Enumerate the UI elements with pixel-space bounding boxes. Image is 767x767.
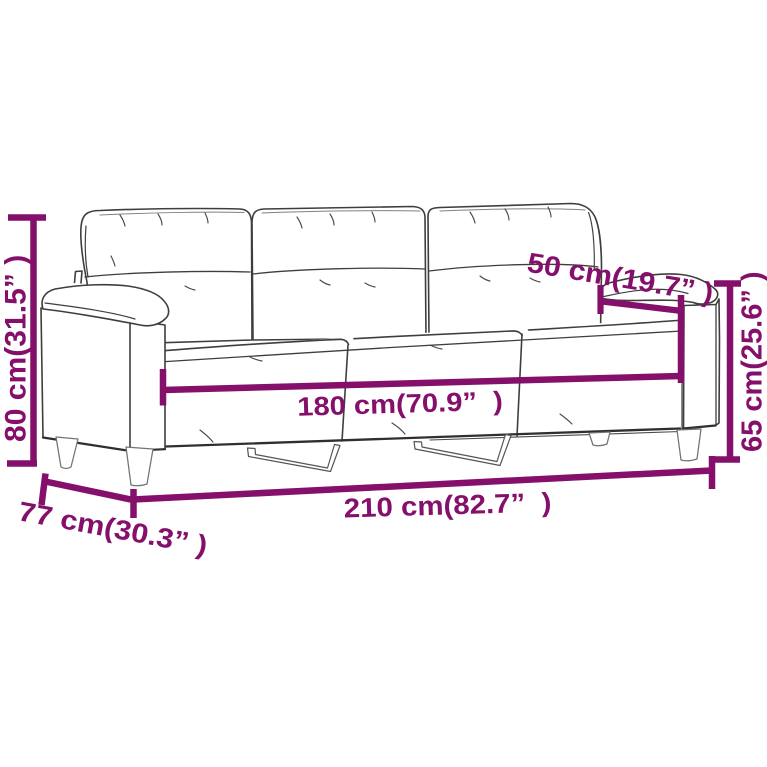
svg-text:65 cm(25.6” ): 65 cm(25.6” ) xyxy=(737,271,767,452)
svg-text:180 cm(70.9” ): 180 cm(70.9” ) xyxy=(297,386,503,422)
svg-text:80 cm(31.5” ): 80 cm(31.5” ) xyxy=(0,255,32,442)
svg-text:210 cm(82.7” ): 210 cm(82.7” ) xyxy=(343,486,552,523)
